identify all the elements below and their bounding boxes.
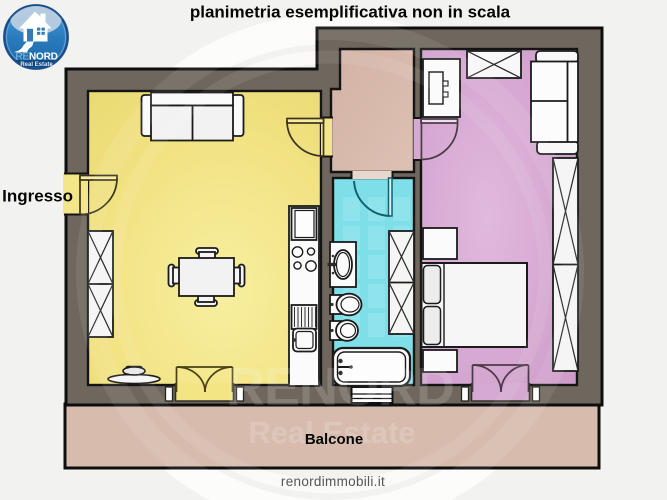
svg-text:renordimmobili.it: renordimmobili.it: [281, 474, 385, 489]
svg-text:Ingresso: Ingresso: [2, 187, 73, 206]
svg-text:RENORD: RENORD: [226, 357, 454, 417]
svg-text:Real Estate: Real Estate: [20, 62, 53, 68]
svg-text:Balcone: Balcone: [305, 431, 363, 448]
svg-text:planimetria esemplificativa no: planimetria esemplificativa non in scala: [190, 3, 511, 22]
svg-text:RENORD: RENORD: [16, 52, 58, 63]
